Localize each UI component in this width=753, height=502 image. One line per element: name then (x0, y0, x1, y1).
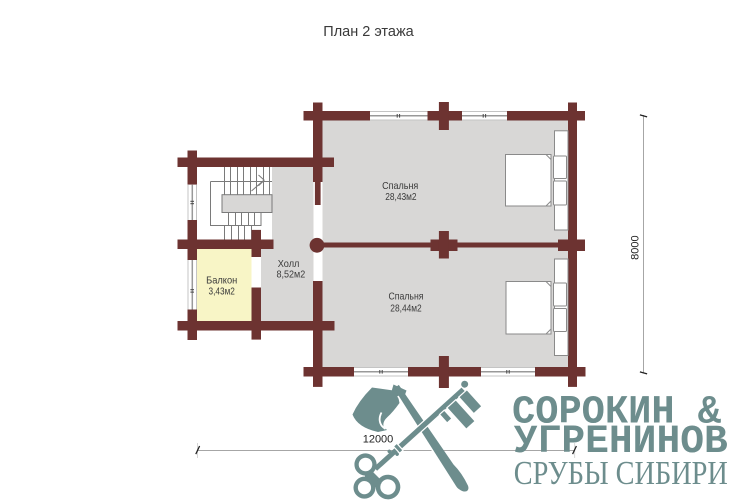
svg-text:12000: 12000 (363, 434, 394, 446)
svg-text:8,52м2: 8,52м2 (277, 270, 306, 281)
svg-text:Спальня: Спальня (389, 292, 424, 303)
svg-text:8000: 8000 (630, 235, 642, 259)
svg-text:Балкон: Балкон (206, 276, 237, 287)
svg-text:28,43м2: 28,43м2 (385, 192, 417, 203)
svg-text:Холл: Холл (278, 259, 300, 270)
svg-text:Спальня: Спальня (382, 181, 418, 192)
svg-text:План 2 этажа: План 2 этажа (323, 24, 414, 40)
svg-text:28,44м2: 28,44м2 (390, 304, 422, 315)
svg-text:3,43м2: 3,43м2 (209, 286, 236, 297)
svg-text:СРУБЫ СИБИРИ: СРУБЫ СИБИРИ (514, 455, 728, 492)
